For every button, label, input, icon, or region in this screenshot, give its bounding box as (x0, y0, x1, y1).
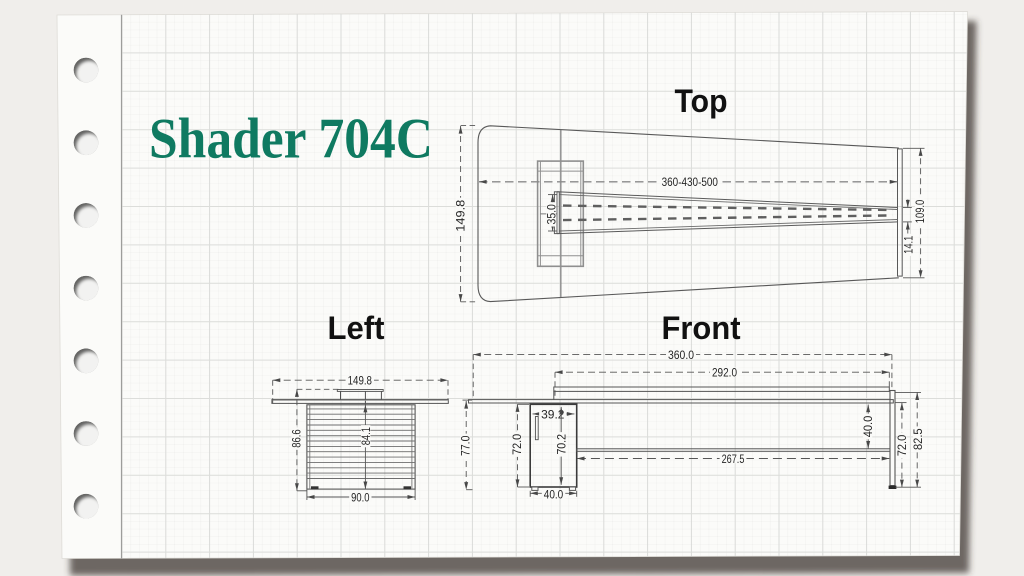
svg-text:149.8: 149.8 (454, 199, 468, 231)
svg-text:40.0: 40.0 (861, 415, 875, 437)
svg-text:82.5: 82.5 (911, 428, 925, 450)
svg-text:72.0: 72.0 (510, 434, 524, 455)
svg-text:84.1: 84.1 (359, 427, 373, 445)
svg-text:292.0: 292.0 (712, 366, 737, 380)
svg-text:90.0: 90.0 (351, 491, 370, 505)
svg-text:70.2: 70.2 (554, 434, 568, 455)
svg-text:Top: Top (675, 83, 728, 119)
svg-text:Left: Left (328, 310, 385, 346)
svg-text:267.5: 267.5 (722, 452, 745, 466)
svg-text:14.1: 14.1 (902, 236, 916, 254)
svg-text:72.0: 72.0 (895, 434, 909, 456)
svg-text:35.0: 35.0 (544, 204, 558, 225)
svg-text:86.6: 86.6 (290, 429, 304, 448)
svg-text:40.0: 40.0 (544, 487, 564, 501)
svg-text:149.8: 149.8 (348, 374, 373, 388)
svg-text:Shader 704C: Shader 704C (149, 108, 433, 171)
svg-text:77.0: 77.0 (459, 435, 473, 456)
svg-text:109.0: 109.0 (913, 199, 927, 223)
svg-text:360-430-500: 360-430-500 (662, 175, 719, 189)
svg-text:Front: Front (662, 310, 741, 346)
svg-text:360.0: 360.0 (668, 348, 694, 362)
